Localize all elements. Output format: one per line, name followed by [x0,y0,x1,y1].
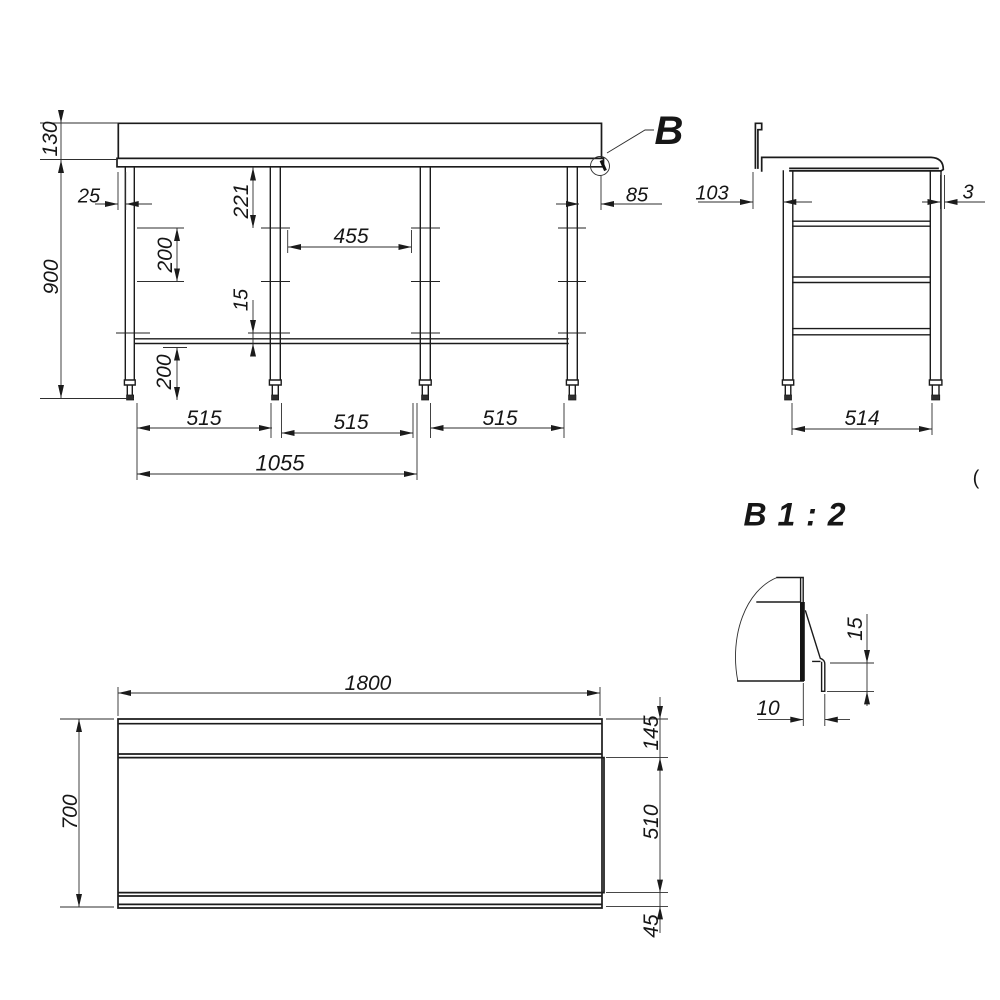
plan-view: 1800 700 145 510 45 [59,672,668,938]
dim-front-edge-band: 45 [640,914,663,938]
dim-front-overhang: 3 [962,182,973,204]
dim-bay-width-3: 515 [482,407,517,430]
tabletop-profile [762,157,944,171]
dim-bay-width-1: 515 [186,407,221,430]
dim-length: 1800 [345,672,392,695]
front-view: 130 900 25 221 200 455 85 15 200 515 515… [39,109,684,480]
side-dimension-lines [698,172,985,435]
dim-left-leg-inset: 25 [77,186,101,208]
dim-leg-span: 514 [844,407,879,430]
stray-cropped-glyph: ( [973,468,980,490]
dim-backsplash-to-leg: 103 [695,183,728,205]
legs-outline [124,167,578,395]
dim-inner-clear-width: 455 [333,225,368,248]
dim-rail-top-offset: 221 [230,183,253,219]
edge-section-fill [800,602,805,681]
dim-shelf-to-floor: 200 [153,354,176,390]
dim-lip-height: 15 [844,617,867,641]
side-view: 103 3 514 [695,123,985,435]
backsplash-profile [755,123,761,168]
side-rails [793,221,931,335]
dim-bay-width-2: 515 [333,411,368,434]
edge-profile-lines [738,578,825,692]
backsplash-outline [118,123,601,158]
dim-upper-rail-spacing: 200 [154,237,177,273]
dim-overall-height: 900 [40,259,63,294]
dim-backsplash-height: 130 [39,121,62,156]
detail-leader-line [607,130,654,153]
undershelf-lines [135,339,568,344]
dim-double-bay-span: 1055 [256,450,306,475]
dim-back-band-depth: 145 [640,715,663,750]
tabletop-plan-outline [118,719,604,908]
detail-callout-label: B [655,109,684,153]
tabletop-edge-strip [117,158,604,167]
dim-lip-offset: 10 [756,697,780,720]
side-dimension-arrowheads [740,199,958,432]
detail-view-title: B 1 : 2 [743,497,846,533]
drawing-sheet: 130 900 25 221 200 455 85 15 200 515 515… [0,0,1000,1000]
dim-work-surface-depth: 510 [640,804,663,839]
adjustable-feet [785,395,940,400]
technical-drawing-canvas: 130 900 25 221 200 455 85 15 200 515 515… [0,0,1000,1000]
dim-right-overhang: 85 [626,185,649,207]
dim-overall-depth: 700 [59,794,82,829]
adjustable-feet [127,395,576,400]
edge-profile-mark [601,161,606,171]
detail-boundary-arc [735,578,777,682]
dim-rail-to-shelf-gap: 15 [231,288,253,311]
detail-view-b: B 1 : 2 15 10 [735,497,874,726]
